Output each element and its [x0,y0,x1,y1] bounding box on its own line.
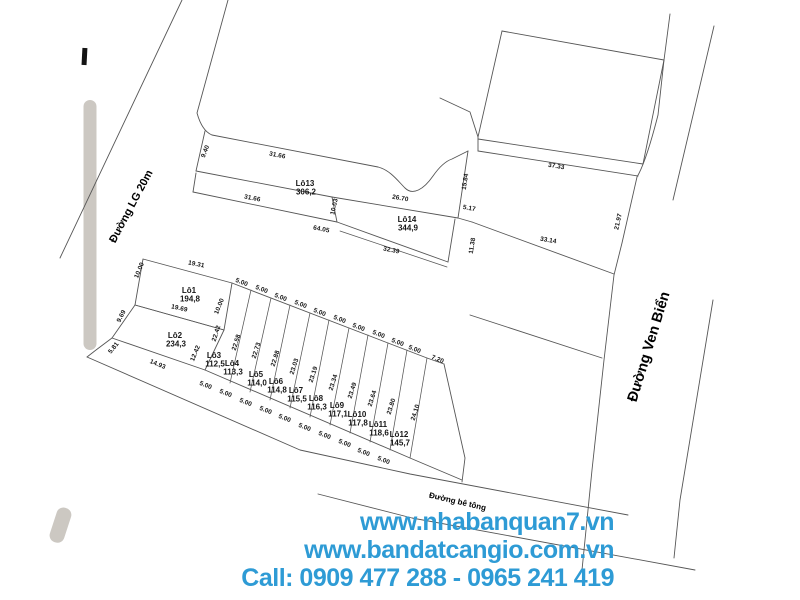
dimension-label: 22.73 [251,341,263,359]
dimension-label: 19.69 [171,303,189,313]
dimension-label: 64.05 [313,225,331,235]
dimension-label: 5.00 [277,413,292,424]
plot-area-label: 114,8 [267,386,287,395]
plot-area-label: 117,1 [328,410,348,419]
dimension-label: 31.66 [269,151,287,161]
website-url: www.bandatcangio.com.vn [241,536,614,564]
dimension-label: 10.00 [213,297,226,315]
dimension-label: 22.88 [270,349,282,367]
dimension-label: 19.31 [188,260,206,270]
dimension-label: 5.81 [107,341,121,356]
parcel-lines [60,0,714,570]
edge-text-fragment [82,48,88,65]
dimension-label: 11.38 [468,237,477,254]
dimension-label: 26.70 [392,194,410,204]
dimension-label: 22.58 [231,333,243,351]
dimension-label: 5.00 [293,299,308,310]
dimension-label: 5.00 [254,284,269,295]
plot-area-label: 114,0 [247,379,267,388]
dimension-label: 24.10 [410,403,422,421]
plot-area-label: 118,6 [369,429,389,438]
dimension-label: 9.69 [116,309,128,324]
dimension-label: 5.00 [198,380,213,391]
plot-area-label: 344,9 [398,224,419,233]
plot-area-label: 116,3 [307,403,327,412]
dimension-label: 5.00 [218,388,233,399]
dimension-label: 14.93 [149,358,167,371]
dimension-label: 5.00 [297,422,312,433]
dimension-label: 5.00 [317,430,332,441]
plot-area-label: 194,8 [180,295,201,304]
road-name-label: Đường Ven Biển [625,290,674,404]
dimension-label: 5.00 [337,438,352,449]
dimension-label: 21.97 [613,213,623,231]
dimension-label: 37.33 [548,162,566,172]
dimension-label: 32.39 [383,246,401,256]
dimension-label: 33.14 [540,236,558,246]
dimension-label: 15.84 [461,173,471,191]
dimension-label: 10.00 [133,261,146,279]
website-url: www.nhabanquan7.vn [241,508,614,536]
dimension-label: 23.80 [386,397,398,415]
plot-area-label: 306,2 [296,188,317,197]
dimension-label: 23.19 [308,365,320,383]
dimension-label: 5.00 [356,447,371,458]
dimension-label: 10.03 [329,198,339,216]
dimension-label: 12.42 [189,344,202,362]
dimension-label: 5.17 [462,204,476,213]
dimension-label: 23.34 [328,373,340,391]
survey-map-screenshot: 9.4031.6631.6610.0326.7064.0532.3915.845… [0,0,800,600]
dimension-label: 5.00 [258,405,273,416]
plot-area-label: 113,3 [223,368,243,377]
watermark-footer: www.nhabanquan7.vn www.bandatcangio.com.… [241,508,614,592]
road-name-label: Đường LG 20m [107,168,156,245]
phone-line: Call: 0909 477 288 - 0965 241 419 [241,564,614,592]
dimension-label: 31.66 [244,194,262,204]
plot-area-label: 115,5 [287,395,307,404]
plot-area-label: 117,8 [348,419,368,428]
plot-area-label: 234,3 [166,340,187,349]
dimension-label: 5.00 [376,455,391,466]
scan-artifact-bar [84,100,97,350]
scan-artifact-bar [48,506,73,545]
dimension-label: 5.00 [332,314,347,325]
dimension-label: 5.00 [371,329,386,340]
plot-area-label: 145,7 [390,439,411,448]
dimension-label: 5.00 [238,397,253,408]
